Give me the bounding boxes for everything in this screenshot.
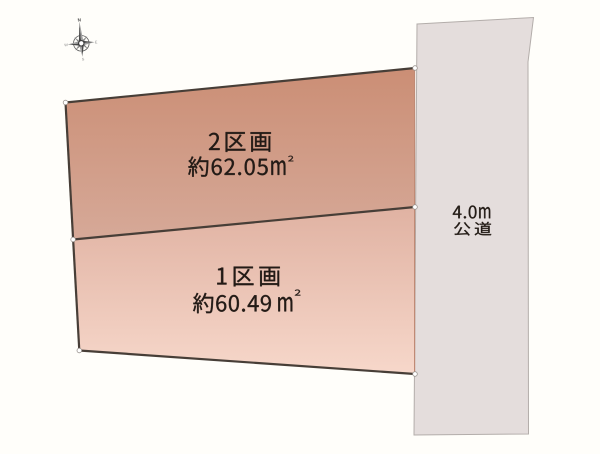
svg-text:N: N bbox=[77, 17, 81, 22]
svg-text:E: E bbox=[95, 40, 98, 44]
svg-text:W: W bbox=[64, 43, 68, 47]
svg-text:S: S bbox=[82, 57, 85, 61]
